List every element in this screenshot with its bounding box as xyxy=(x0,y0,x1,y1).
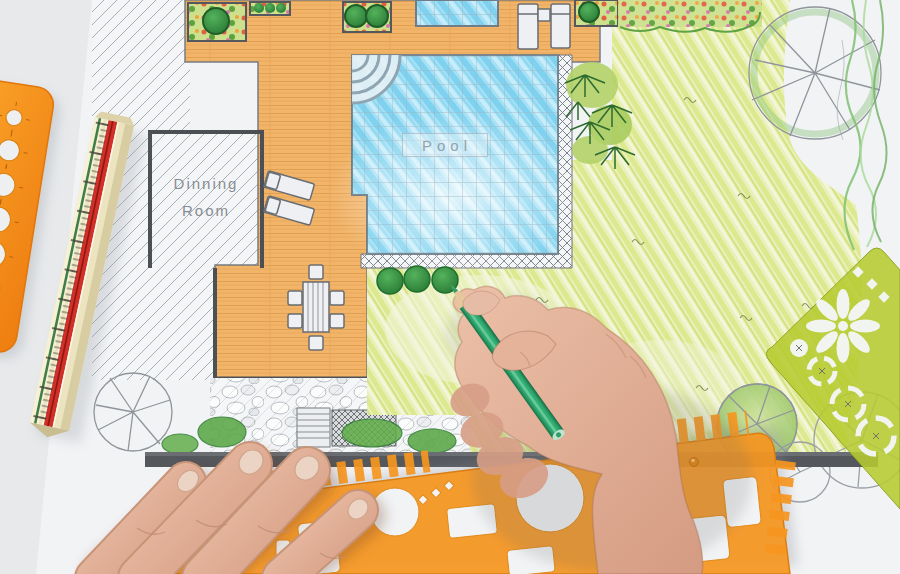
drawn-bushes xyxy=(377,266,458,294)
chair xyxy=(288,314,302,328)
chair xyxy=(330,314,344,328)
pool-label: Pool xyxy=(402,133,488,157)
left-hand xyxy=(95,445,372,574)
garden-plan-drawing xyxy=(0,0,900,574)
chair xyxy=(309,336,323,350)
circle-template-stencil xyxy=(0,78,56,354)
dining-room-label: Dinning Room xyxy=(148,170,264,224)
dining-room-label-line2: Room xyxy=(148,197,264,224)
side-table xyxy=(538,9,550,21)
chair xyxy=(330,291,344,305)
sun-lounger xyxy=(518,4,538,49)
dining-table xyxy=(303,282,329,332)
chair xyxy=(288,291,302,305)
chair xyxy=(309,265,323,279)
photo-landscape-plan-scene: Dinning Room Pool xyxy=(0,0,900,574)
sun-lounger xyxy=(551,4,570,48)
tree-symbol xyxy=(94,373,172,451)
spa xyxy=(416,0,498,26)
dining-room-label-line1: Dinning xyxy=(148,170,264,197)
